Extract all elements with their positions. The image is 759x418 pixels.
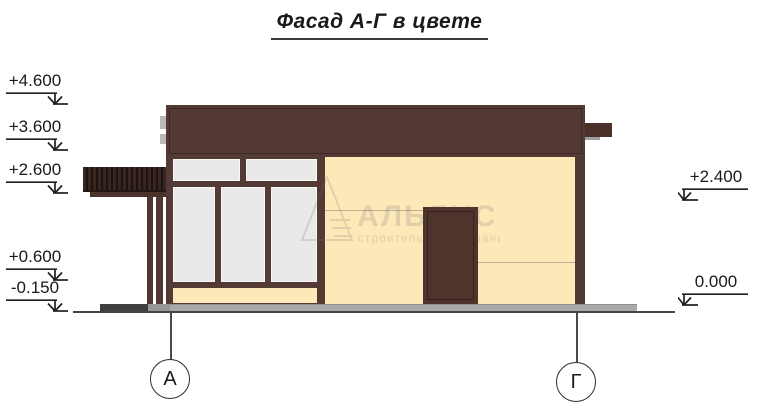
elevation-marker: +2.400 <box>678 166 748 204</box>
title-row: Фасад А-Г в цвете <box>0 10 759 40</box>
corner-pilaster <box>575 157 585 304</box>
elevation-marker: +4.600 <box>6 70 76 108</box>
porch-step <box>100 304 148 311</box>
elevation-marker: +2.600 <box>6 159 76 197</box>
axis-line <box>170 313 172 360</box>
porch-step-insert <box>148 304 170 311</box>
elevation-label: +4.600 <box>6 70 64 92</box>
elevation-label: +0.600 <box>6 246 64 268</box>
elevation-arrow-icon <box>6 299 76 315</box>
rafter-shadow <box>585 137 600 140</box>
elevation-label: +3.600 <box>6 116 64 138</box>
elevation-label: +2.400 <box>678 166 748 188</box>
rafter-end <box>585 123 612 137</box>
axis-bubble-g: Г <box>556 362 596 402</box>
storefront-base <box>173 288 317 303</box>
elevation-label: +2.600 <box>6 159 64 181</box>
entrance-door <box>423 207 478 304</box>
canopy-post <box>156 197 163 304</box>
elevation-label: 0.000 <box>678 271 748 293</box>
elevation-marker: -0.150 <box>6 277 76 315</box>
axis-label: А <box>163 368 176 391</box>
elevation-marker: 0.000 <box>678 271 748 309</box>
axis-line <box>576 313 578 362</box>
drawing-title: Фасад А-Г в цвете <box>271 10 489 40</box>
window-pane <box>173 187 215 282</box>
window-pane <box>221 187 265 282</box>
roof-panel-outline <box>169 108 582 154</box>
elevation-arrow-icon <box>678 293 748 309</box>
elevation-arrow-icon <box>6 181 76 197</box>
roof-fascia <box>166 105 585 157</box>
canopy <box>83 167 166 192</box>
triangle-logo-icon <box>302 177 352 240</box>
porch-platform <box>170 304 637 311</box>
elevation-marker: +3.600 <box>6 116 76 154</box>
facade-drawing-canvas: Фасад А-Г в цвете +4.600 +3.600 +2.600 +… <box>0 0 759 418</box>
ground-line <box>73 311 675 313</box>
elevation-arrow-icon <box>6 138 76 154</box>
axis-bubble-a: А <box>150 359 190 399</box>
transom-pane <box>173 159 240 181</box>
elevation-arrow-icon <box>6 92 76 108</box>
elevation-arrow-icon <box>678 188 748 204</box>
siding-joint-line <box>478 262 575 263</box>
axis-label: Г <box>571 371 582 394</box>
canopy-post <box>147 197 153 304</box>
elevation-label: -0.150 <box>6 277 64 299</box>
door-panel-outline <box>427 211 474 300</box>
